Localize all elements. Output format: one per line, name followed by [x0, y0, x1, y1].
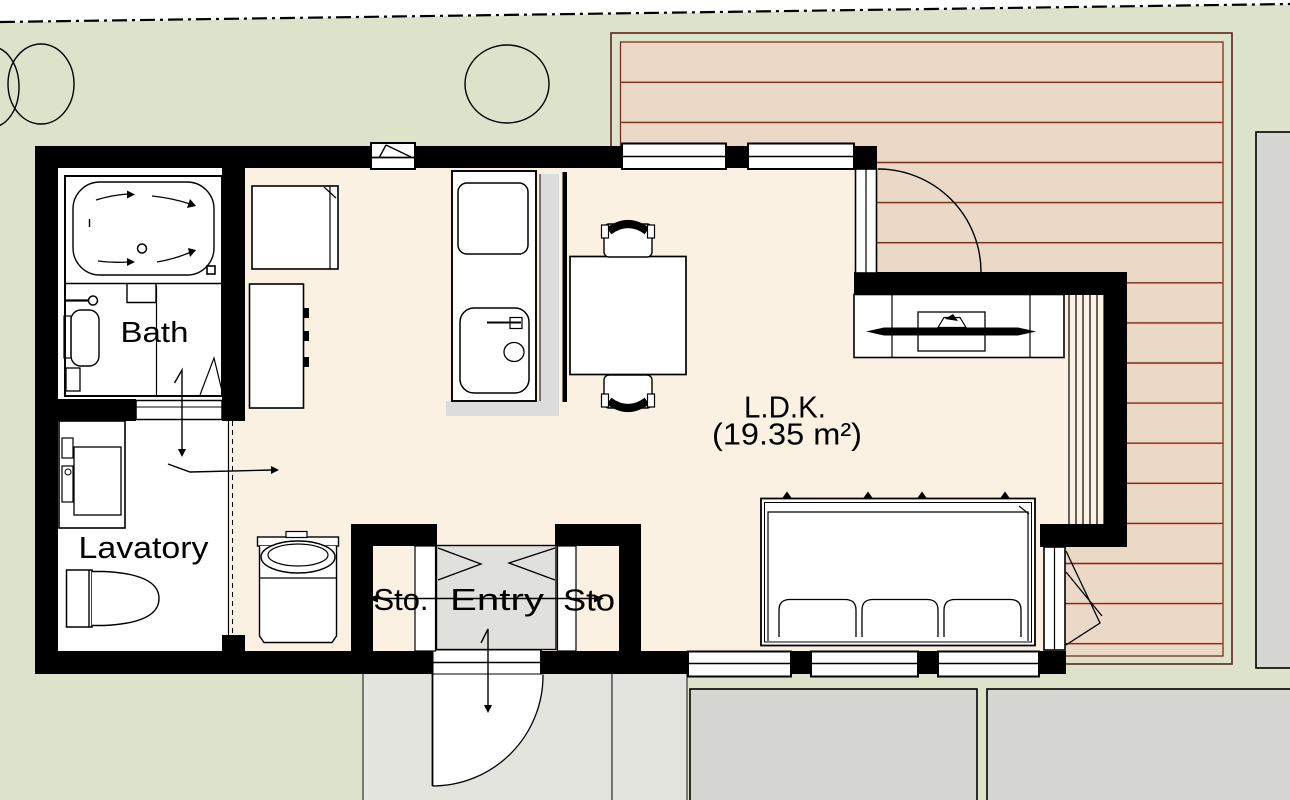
svg-text:Sto: Sto [563, 583, 615, 618]
svg-text:Entry: Entry [450, 582, 545, 617]
svg-text:Sto.: Sto. [374, 582, 429, 617]
svg-text:Lavatory: Lavatory [79, 530, 210, 565]
svg-text:Bath: Bath [121, 317, 189, 349]
svg-text:(19.35 m²): (19.35 m²) [712, 417, 862, 452]
